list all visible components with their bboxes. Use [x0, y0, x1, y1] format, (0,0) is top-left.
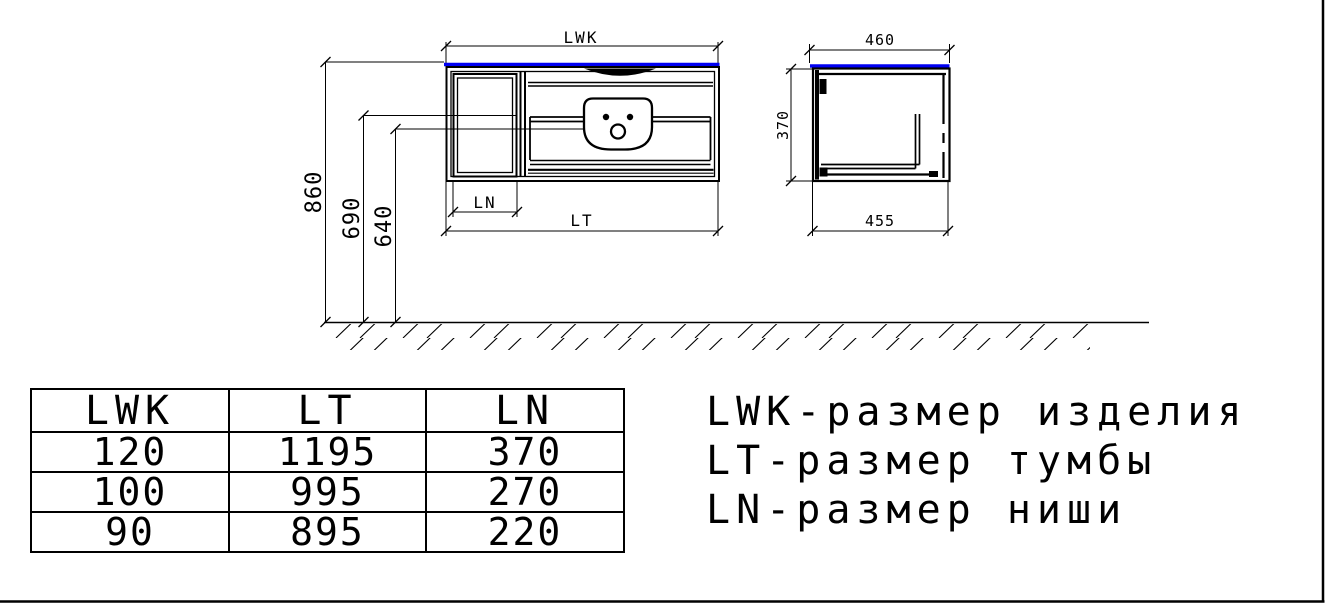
dim-860-label: 860 [302, 171, 327, 214]
divider [521, 72, 526, 177]
basin-dip [584, 69, 656, 76]
dim-370: 370 [774, 64, 813, 186]
sink [584, 99, 652, 150]
table-header-ln: LN [426, 389, 624, 432]
table-cell: 90 [31, 512, 229, 552]
table-cell: 370 [426, 432, 624, 472]
niche-outline-inner [458, 78, 513, 173]
faucet-hole-right [627, 114, 633, 120]
front-view: LWK [302, 28, 723, 327]
dim-ln-label: LN [473, 193, 496, 212]
drawing-sheet: LWK [0, 0, 1327, 608]
dim-heights: 860 690 640 [302, 57, 444, 327]
table-row: 120 1195 370 [31, 432, 624, 472]
dim-460: 460 [805, 31, 955, 63]
legend-line-lwk: LWK-размер изделия [706, 388, 1247, 437]
table-cell: 1195 [229, 432, 426, 472]
table-cell: 100 [31, 472, 229, 512]
side-wall-notch-top [820, 79, 827, 94]
drawer-front-bottom [530, 161, 711, 165]
ground [324, 323, 1149, 351]
table-cell: 120 [31, 432, 229, 472]
table-row: 100 995 270 [31, 472, 624, 512]
table-header-lt: LT [229, 389, 426, 432]
dim-690-label: 690 [340, 197, 365, 240]
drawer-profile [821, 114, 920, 169]
faucet-hole-left [603, 114, 609, 120]
table-cell: 270 [426, 472, 624, 512]
side-wall-notch-bottom-left [820, 168, 828, 177]
table-header-row: LWK LT LN [31, 389, 624, 432]
table-cell: 895 [229, 512, 426, 552]
dim-640-label: 640 [372, 205, 397, 248]
niche-outline [454, 74, 517, 177]
legend-line-ln: LN-размер ниши [706, 486, 1247, 535]
dim-lwk-label: LWK [564, 28, 599, 47]
legend-line-lt: LT-размер тумбы [706, 437, 1247, 486]
dim-370-label: 370 [774, 110, 792, 140]
dim-455-label: 455 [865, 212, 895, 230]
dim-lt-label: LT [570, 211, 593, 230]
drain-hole [611, 125, 625, 139]
table-row: 90 895 220 [31, 512, 624, 552]
dim-ln: LN [448, 181, 522, 217]
side-view: 460 370 455 [774, 31, 955, 236]
dim-455: 455 [808, 182, 954, 236]
ground-hatching [332, 324, 1090, 350]
table-header-lwk: LWK [31, 389, 229, 432]
size-table: LWK LT LN 120 1195 370 100 995 270 90 89… [30, 388, 625, 553]
side-wall-notch-bottom-right [929, 171, 938, 177]
dim-460-label: 460 [865, 31, 895, 49]
table-cell: 220 [426, 512, 624, 552]
legend: LWK-размер изделия LT-размер тумбы LN-ра… [706, 388, 1247, 535]
dim-lwk: LWK [441, 28, 723, 63]
drawer-top-rail [528, 83, 713, 87]
table-cell: 995 [229, 472, 426, 512]
dim-tick [321, 57, 401, 327]
